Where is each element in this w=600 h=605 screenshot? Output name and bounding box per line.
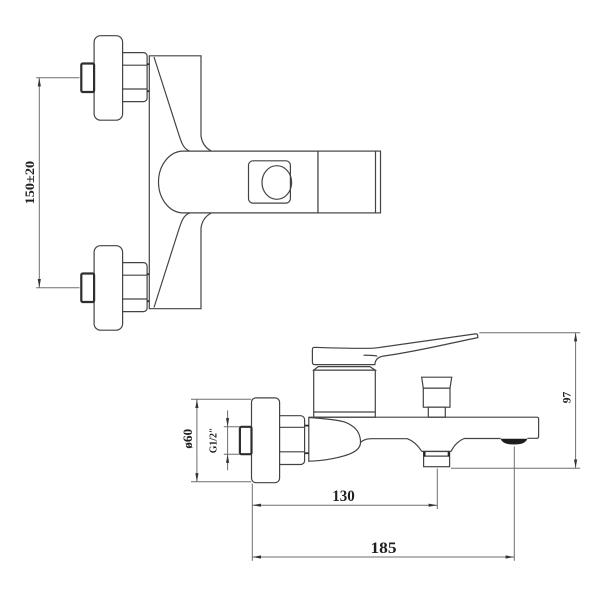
- svg-text:130: 130: [332, 488, 355, 505]
- svg-text:G1/2″: G1/2″: [208, 428, 220, 454]
- svg-text:ø60: ø60: [181, 429, 195, 449]
- svg-text:185: 185: [371, 540, 397, 557]
- svg-text:97: 97: [559, 392, 573, 404]
- svg-text:150±20: 150±20: [22, 161, 37, 205]
